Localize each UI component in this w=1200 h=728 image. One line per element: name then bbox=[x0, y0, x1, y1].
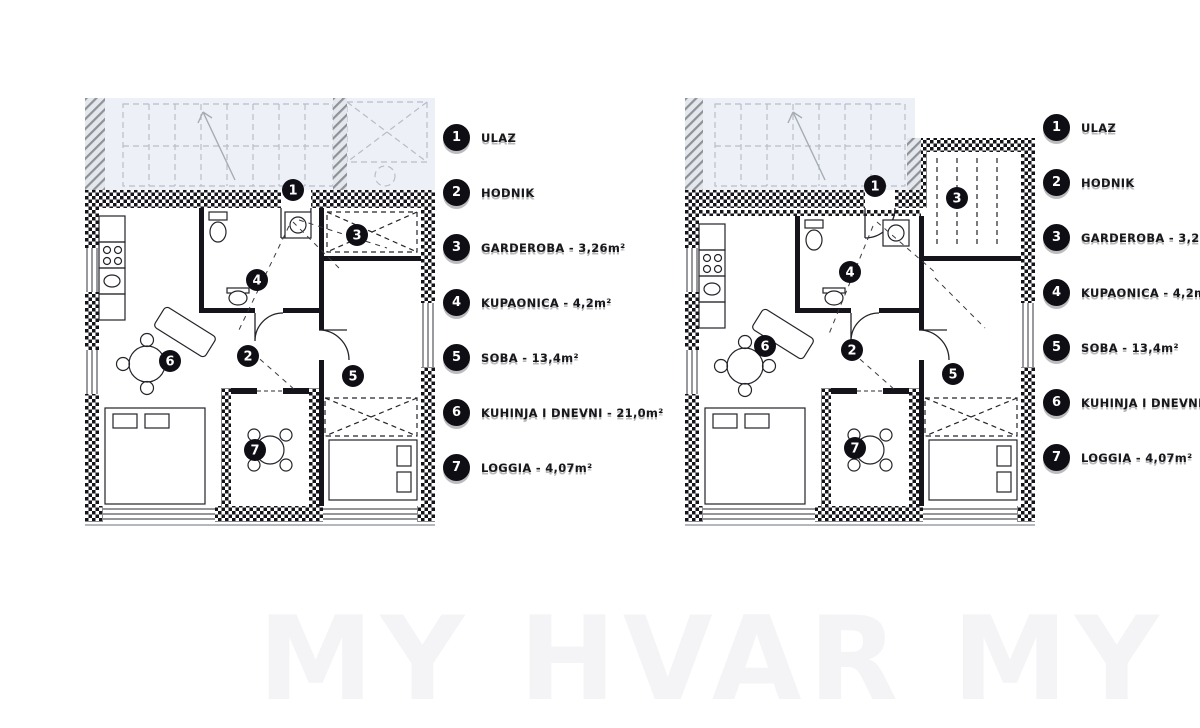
legend-item-label: GARDEROBA - 3,26m² bbox=[481, 241, 625, 255]
loggia-walls bbox=[221, 388, 319, 506]
watermark: MY HVAR MY HVAR bbox=[258, 592, 1200, 722]
room-marker-number: 5 bbox=[948, 368, 957, 383]
legend-left: 1 ULAZ 2 HODNIK 3 GARDEROBA - 3,26m² 4 K… bbox=[443, 110, 643, 495]
legend-number-badge: 4 bbox=[443, 289, 470, 316]
legend-number-badge: 7 bbox=[1043, 444, 1070, 471]
legend-item-loggia: 7 LOGGIA - 4,07m² bbox=[1043, 430, 1200, 485]
legend-number-badge: 5 bbox=[1043, 334, 1070, 361]
legend-item-kuhinja-dnevni: 6 KUHINJA I DNEVNI - 21,0m² bbox=[1043, 375, 1200, 430]
legend-item-label: KUHINJA I DNEVNI - 21,0m² bbox=[1081, 396, 1200, 410]
legend-item-garderoba: 3 GARDEROBA - 3,26m² bbox=[1043, 210, 1200, 265]
legend-item-soba: 5 SOBA - 13,4m² bbox=[1043, 320, 1200, 375]
legend-item-soba: 5 SOBA - 13,4m² bbox=[443, 330, 643, 385]
legend-number-badge: 2 bbox=[1043, 169, 1070, 196]
legend-item-hodnik: 2 HODNIK bbox=[443, 165, 643, 220]
bathroom-fixtures bbox=[209, 212, 311, 305]
room-marker-number: 3 bbox=[352, 229, 361, 244]
legend-item-label: ULAZ bbox=[1081, 121, 1116, 135]
legend-item-garderoba: 3 GARDEROBA - 3,26m² bbox=[443, 220, 643, 275]
room-marker-number: 5 bbox=[348, 370, 357, 385]
legend-number-badge: 1 bbox=[443, 124, 470, 151]
room-marker-number: 2 bbox=[847, 344, 856, 359]
legend-item-hodnik: 2 HODNIK bbox=[1043, 155, 1200, 210]
bedroom-fixtures bbox=[925, 158, 1017, 500]
loggia-walls bbox=[821, 388, 919, 506]
legend-item-label: SOBA - 13,4m² bbox=[481, 351, 579, 365]
legend-item-label: KUPAONICA - 4,2m² bbox=[481, 296, 612, 310]
legend-number-badge: 6 bbox=[443, 399, 470, 426]
room-marker-number: 1 bbox=[288, 184, 297, 199]
room-marker-number: 2 bbox=[243, 350, 252, 365]
legend-item-label: HODNIK bbox=[481, 186, 535, 200]
legend-item-label: SOBA - 13,4m² bbox=[1081, 341, 1179, 355]
bedroom-fixtures bbox=[325, 212, 417, 500]
legend-item-label: KUHINJA I DNEVNI - 21,0m² bbox=[481, 406, 664, 420]
legend-item-label: KUPAONICA - 4,2m² bbox=[1081, 286, 1200, 300]
room-markers-left: 1234567 bbox=[159, 179, 368, 461]
room-marker-number: 3 bbox=[952, 192, 961, 207]
legend-item-label: LOGGIA - 4,07m² bbox=[1081, 451, 1192, 465]
legend-item-label: LOGGIA - 4,07m² bbox=[481, 461, 592, 475]
guide-lines bbox=[237, 220, 387, 390]
room-marker-number: 6 bbox=[165, 355, 174, 370]
legend-item-kupaonica: 4 KUPAONICA - 4,2m² bbox=[443, 275, 643, 330]
legend-item-label: GARDEROBA - 3,26m² bbox=[1081, 231, 1200, 245]
floor-plan-left: 1234567 bbox=[85, 98, 435, 528]
legend-number-badge: 4 bbox=[1043, 279, 1070, 306]
room-marker-number: 1 bbox=[870, 180, 879, 195]
legend-item-kupaonica: 4 KUPAONICA - 4,2m² bbox=[1043, 265, 1200, 320]
legend-item-label: HODNIK bbox=[1081, 176, 1135, 190]
legend-item-loggia: 7 LOGGIA - 4,07m² bbox=[443, 440, 643, 495]
floor-plan-right: 1234567 bbox=[685, 98, 1035, 528]
legend-number-badge: 5 bbox=[443, 344, 470, 371]
room-marker-number: 6 bbox=[760, 340, 769, 355]
legend-number-badge: 6 bbox=[1043, 389, 1070, 416]
room-marker-number: 4 bbox=[252, 274, 261, 289]
legend-number-badge: 3 bbox=[443, 234, 470, 261]
bathroom-fixtures bbox=[805, 220, 909, 305]
room-marker-number: 4 bbox=[845, 266, 854, 281]
room-marker-number: 7 bbox=[250, 444, 259, 459]
legend-number-badge: 3 bbox=[1043, 224, 1070, 251]
legend-number-badge: 1 bbox=[1043, 114, 1070, 141]
legend-item-ulaz: 1 ULAZ bbox=[1043, 100, 1200, 155]
legend-right: 1 ULAZ 2 HODNIK 3 GARDEROBA - 3,26m² 4 K… bbox=[1043, 100, 1200, 485]
room-marker-number: 7 bbox=[850, 442, 859, 457]
legend-number-badge: 7 bbox=[443, 454, 470, 481]
legend-item-label: ULAZ bbox=[481, 131, 516, 145]
exterior-walls bbox=[85, 190, 435, 525]
legend-item-ulaz: 1 ULAZ bbox=[443, 110, 643, 165]
guide-lines bbox=[829, 222, 985, 390]
room-markers-right: 1234567 bbox=[754, 175, 968, 459]
legend-item-kuhinja-dnevni: 6 KUHINJA I DNEVNI - 21,0m² bbox=[443, 385, 643, 440]
legend-number-badge: 2 bbox=[443, 179, 470, 206]
common-area-staircase bbox=[685, 98, 921, 190]
window-openings bbox=[685, 248, 1035, 522]
common-area-staircase bbox=[85, 98, 435, 190]
